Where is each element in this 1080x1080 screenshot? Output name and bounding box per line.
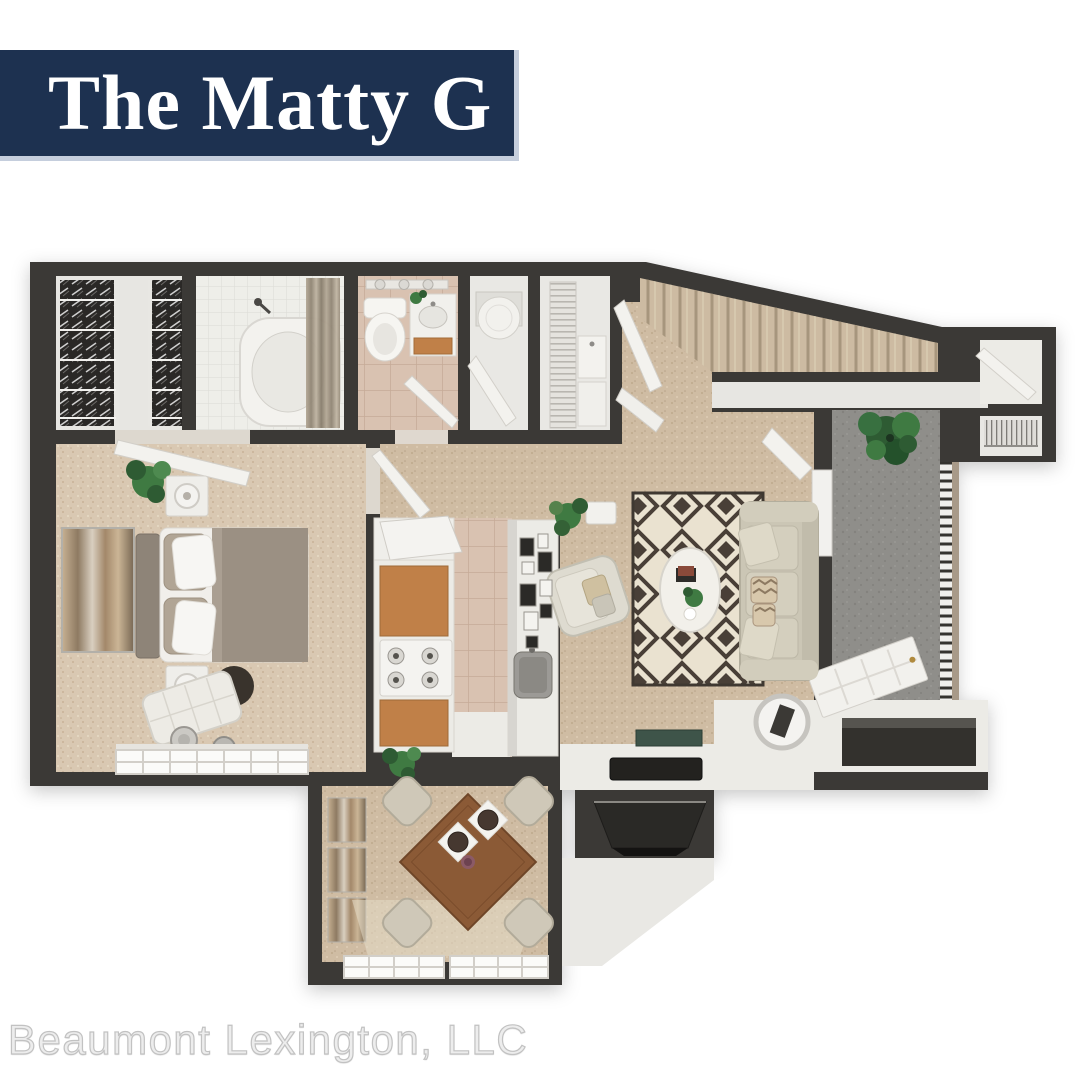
railing-handrail <box>952 462 959 700</box>
balcony-railing <box>940 462 954 700</box>
storage-wire-shelf <box>984 420 1038 446</box>
open-cabinet-door <box>380 516 462 560</box>
stove <box>380 640 452 696</box>
louvered-door <box>550 282 576 428</box>
nightstand-top <box>166 476 208 516</box>
television <box>610 758 702 780</box>
bathroom <box>358 276 458 430</box>
storage-closets <box>976 340 1042 456</box>
plan-title: The Matty G <box>48 58 492 148</box>
dryer <box>578 382 606 426</box>
toilet <box>364 298 406 361</box>
floor-plan-illustration <box>0 0 1080 1080</box>
sofa <box>737 502 818 680</box>
bed <box>136 528 308 662</box>
water-heater <box>478 297 520 339</box>
ring-decor <box>756 696 808 748</box>
floor-plan-poster: The Matty G Beaumont Lexington, LLC <box>0 0 1080 1080</box>
closet-door-threshold <box>115 430 250 444</box>
entry-underside-face <box>562 858 714 966</box>
company-watermark: Beaumont Lexington, LLC <box>8 1016 528 1064</box>
closet-clothes-right <box>152 280 182 426</box>
closet-clothes-left <box>60 280 116 426</box>
blanket <box>212 528 308 662</box>
plan-name-banner: The Matty G <box>0 50 519 161</box>
bathroom-vanity <box>410 290 456 356</box>
shower-curtain <box>306 278 340 428</box>
chevron-pillows <box>751 577 777 626</box>
laundry-closet <box>540 276 610 430</box>
bedroom-window <box>116 744 308 774</box>
utility-closet <box>468 276 528 430</box>
kitchen-counter <box>374 560 454 752</box>
wood-cabinets <box>380 566 448 636</box>
walk-in-closet <box>56 276 182 430</box>
bathroom-door-threshold <box>395 430 448 444</box>
patio-wall-face <box>712 382 988 408</box>
bedroom-wall-art <box>62 528 134 652</box>
shower-room <box>196 276 344 430</box>
coffee-table <box>660 548 720 632</box>
marble-slab <box>636 730 702 746</box>
headboard <box>136 534 160 658</box>
